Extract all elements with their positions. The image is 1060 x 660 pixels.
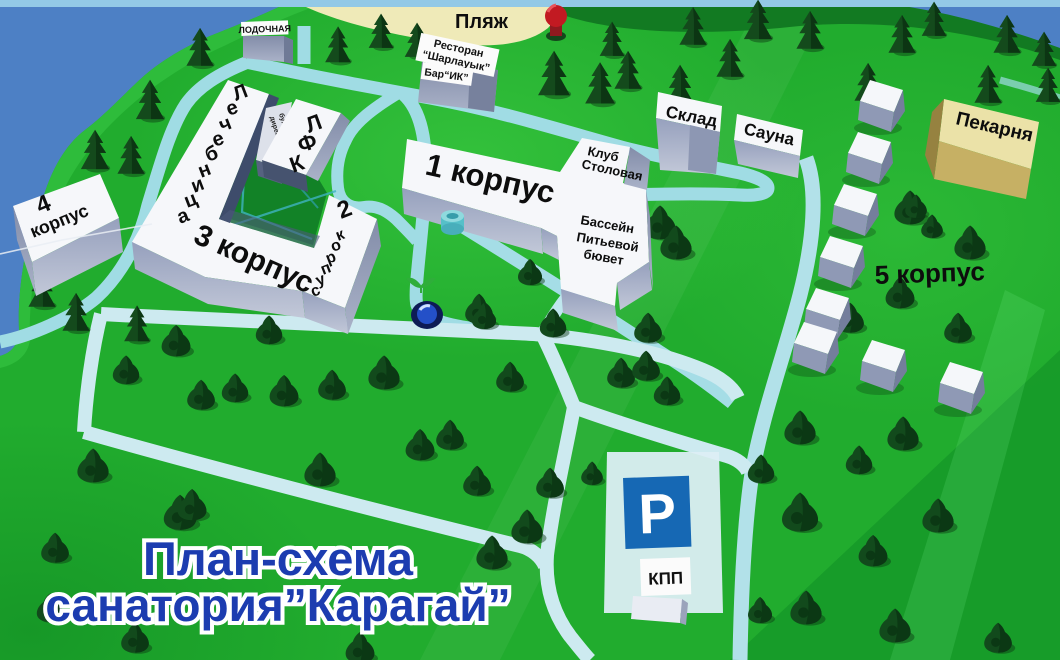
- svg-text:5 корпус: 5 корпус: [874, 256, 985, 290]
- svg-text:P: P: [637, 481, 677, 545]
- svg-text:План-схема: План-схема: [143, 532, 414, 585]
- svg-text:санатория”Карагай”: санатория”Карагай”: [45, 579, 510, 631]
- svg-text:Пляж: Пляж: [455, 11, 509, 33]
- svg-text:ЛОДОЧНАЯ: ЛОДОЧНАЯ: [238, 23, 291, 35]
- svg-text:КПП: КПП: [648, 569, 683, 589]
